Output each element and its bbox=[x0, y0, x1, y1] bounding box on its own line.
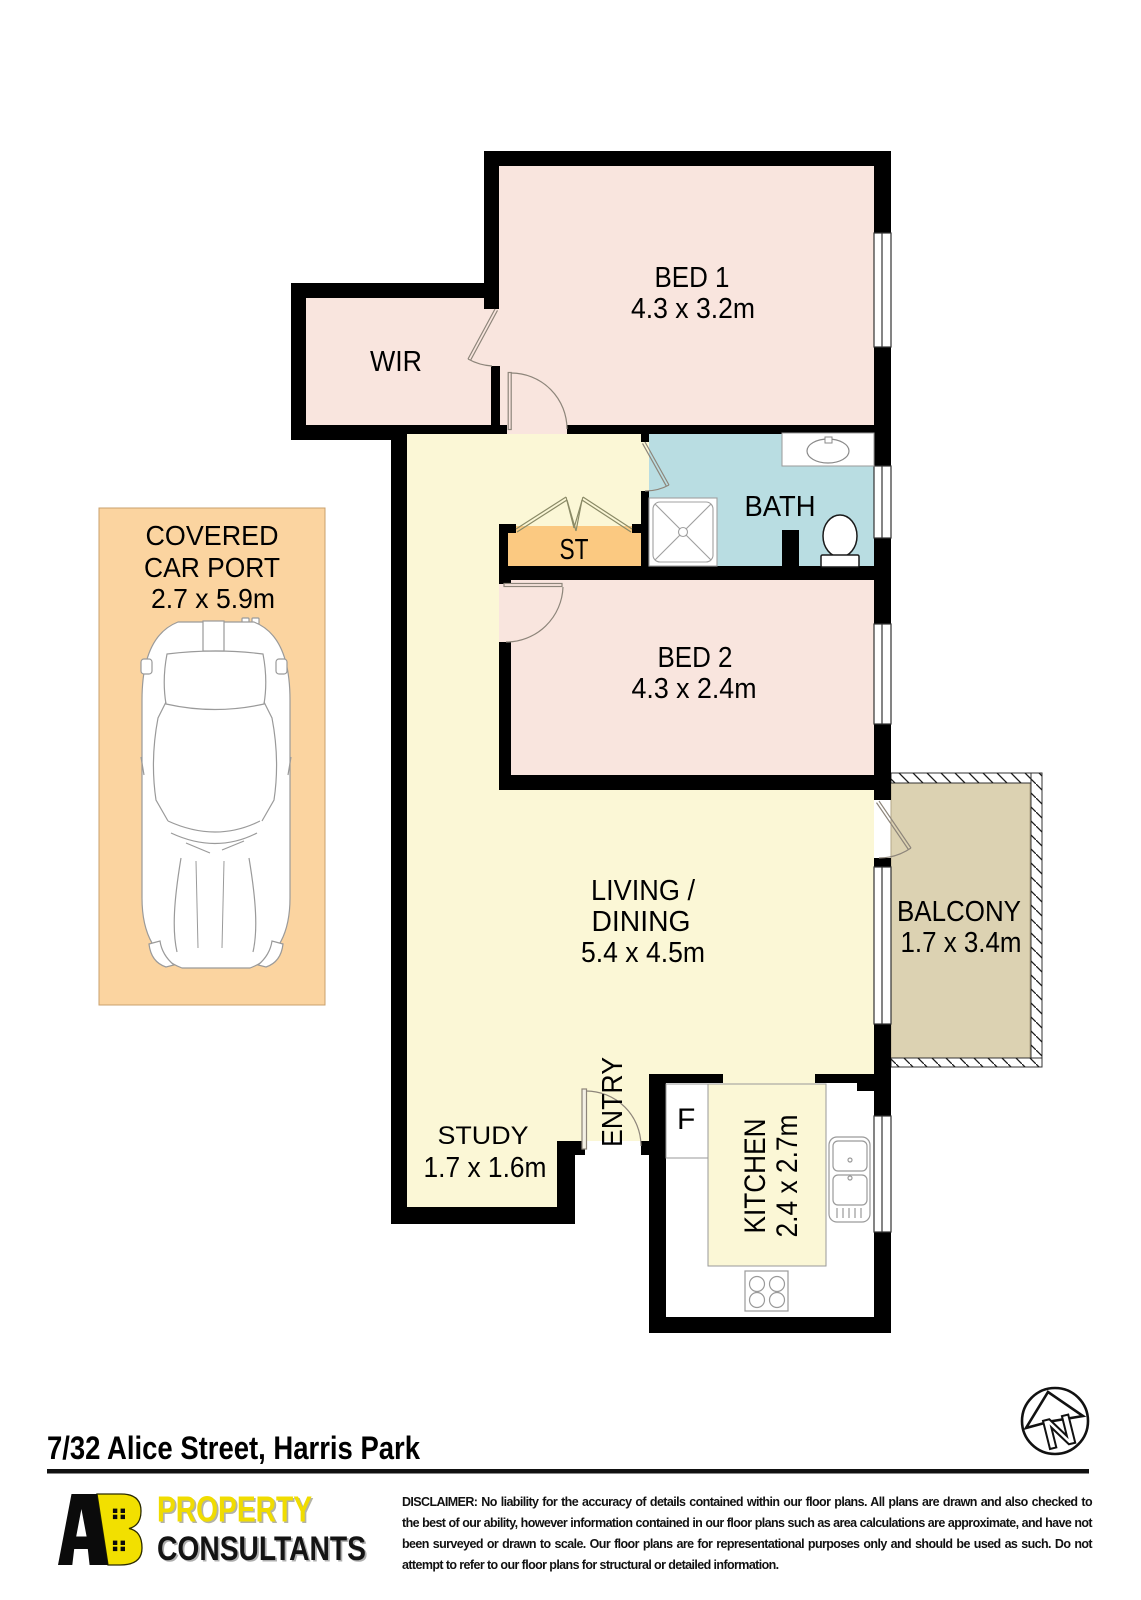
svg-text:BED 1: BED 1 bbox=[655, 262, 730, 294]
svg-text:BED 2: BED 2 bbox=[658, 642, 733, 674]
svg-text:4.3 x 2.4m: 4.3 x 2.4m bbox=[632, 673, 757, 705]
svg-text:ENTRY: ENTRY bbox=[597, 1057, 629, 1147]
svg-text:1.7 x 3.4m: 1.7 x 3.4m bbox=[901, 927, 1022, 959]
svg-text:2.4 x 2.7m: 2.4 x 2.7m bbox=[771, 1115, 804, 1238]
svg-text:1.7 x 1.6m: 1.7 x 1.6m bbox=[424, 1152, 547, 1184]
svg-text:ST: ST bbox=[560, 534, 589, 566]
svg-text:COVERED: COVERED bbox=[146, 520, 279, 551]
svg-text:STUDY: STUDY bbox=[438, 1122, 529, 1150]
svg-text:7/32 Alice Street, Harris Park: 7/32 Alice Street, Harris Park bbox=[47, 1430, 420, 1466]
svg-text:BATH: BATH bbox=[745, 491, 816, 523]
svg-text:2.7 x 5.9m: 2.7 x 5.9m bbox=[151, 583, 275, 614]
svg-text:WIR: WIR bbox=[370, 346, 422, 378]
svg-text:F: F bbox=[677, 1103, 695, 1136]
svg-text:CAR PORT: CAR PORT bbox=[144, 552, 280, 583]
svg-text:KITCHEN: KITCHEN bbox=[739, 1119, 772, 1234]
svg-text:BALCONY: BALCONY bbox=[897, 896, 1021, 928]
svg-text:DINING: DINING bbox=[592, 906, 691, 938]
svg-text:4.3 x 3.2m: 4.3 x 3.2m bbox=[631, 293, 755, 325]
svg-text:5.4 x 4.5m: 5.4 x 4.5m bbox=[581, 937, 705, 969]
svg-text:PROPERTY: PROPERTY bbox=[157, 1489, 312, 1530]
svg-text:CONSULTANTS: CONSULTANTS bbox=[157, 1530, 366, 1568]
svg-text:LIVING /: LIVING / bbox=[591, 875, 696, 907]
